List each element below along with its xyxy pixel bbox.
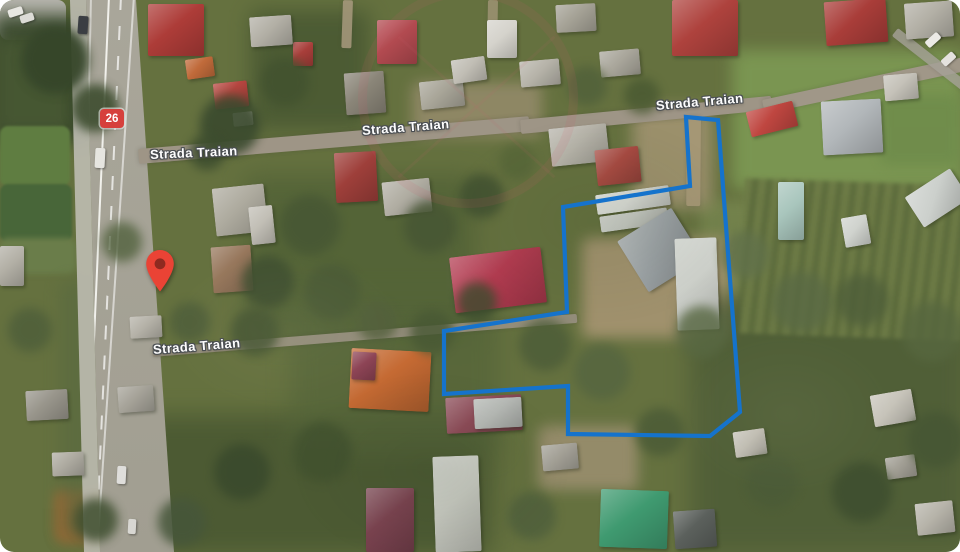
pin-inner-dot	[155, 258, 166, 269]
route-badge-label: 26	[106, 113, 119, 125]
pin-body	[146, 250, 174, 292]
satellite-map[interactable]: Strada TraianStrada TraianStrada TraianS…	[0, 0, 960, 552]
route-badge-26: 26	[100, 109, 124, 128]
property-boundary	[444, 117, 740, 436]
property-boundary-overlay	[0, 0, 960, 552]
map-pin[interactable]	[145, 249, 175, 293]
